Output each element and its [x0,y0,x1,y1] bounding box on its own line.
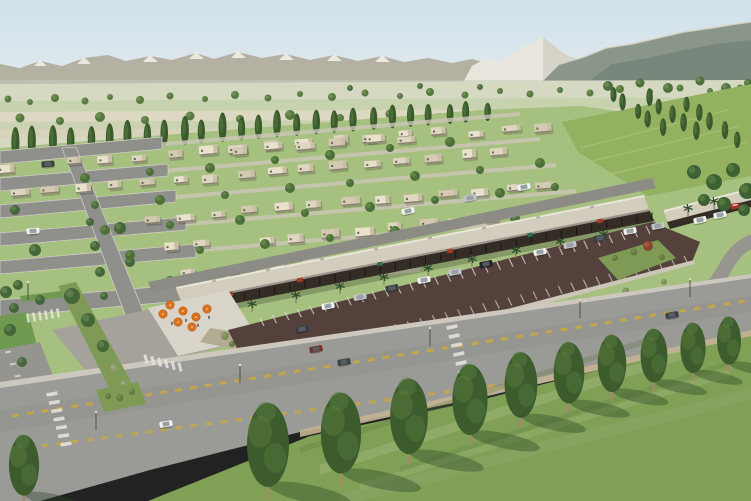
aerial-site-rendering [0,0,751,501]
scene-svg [0,0,751,501]
ornamental-red-tree [643,241,653,251]
